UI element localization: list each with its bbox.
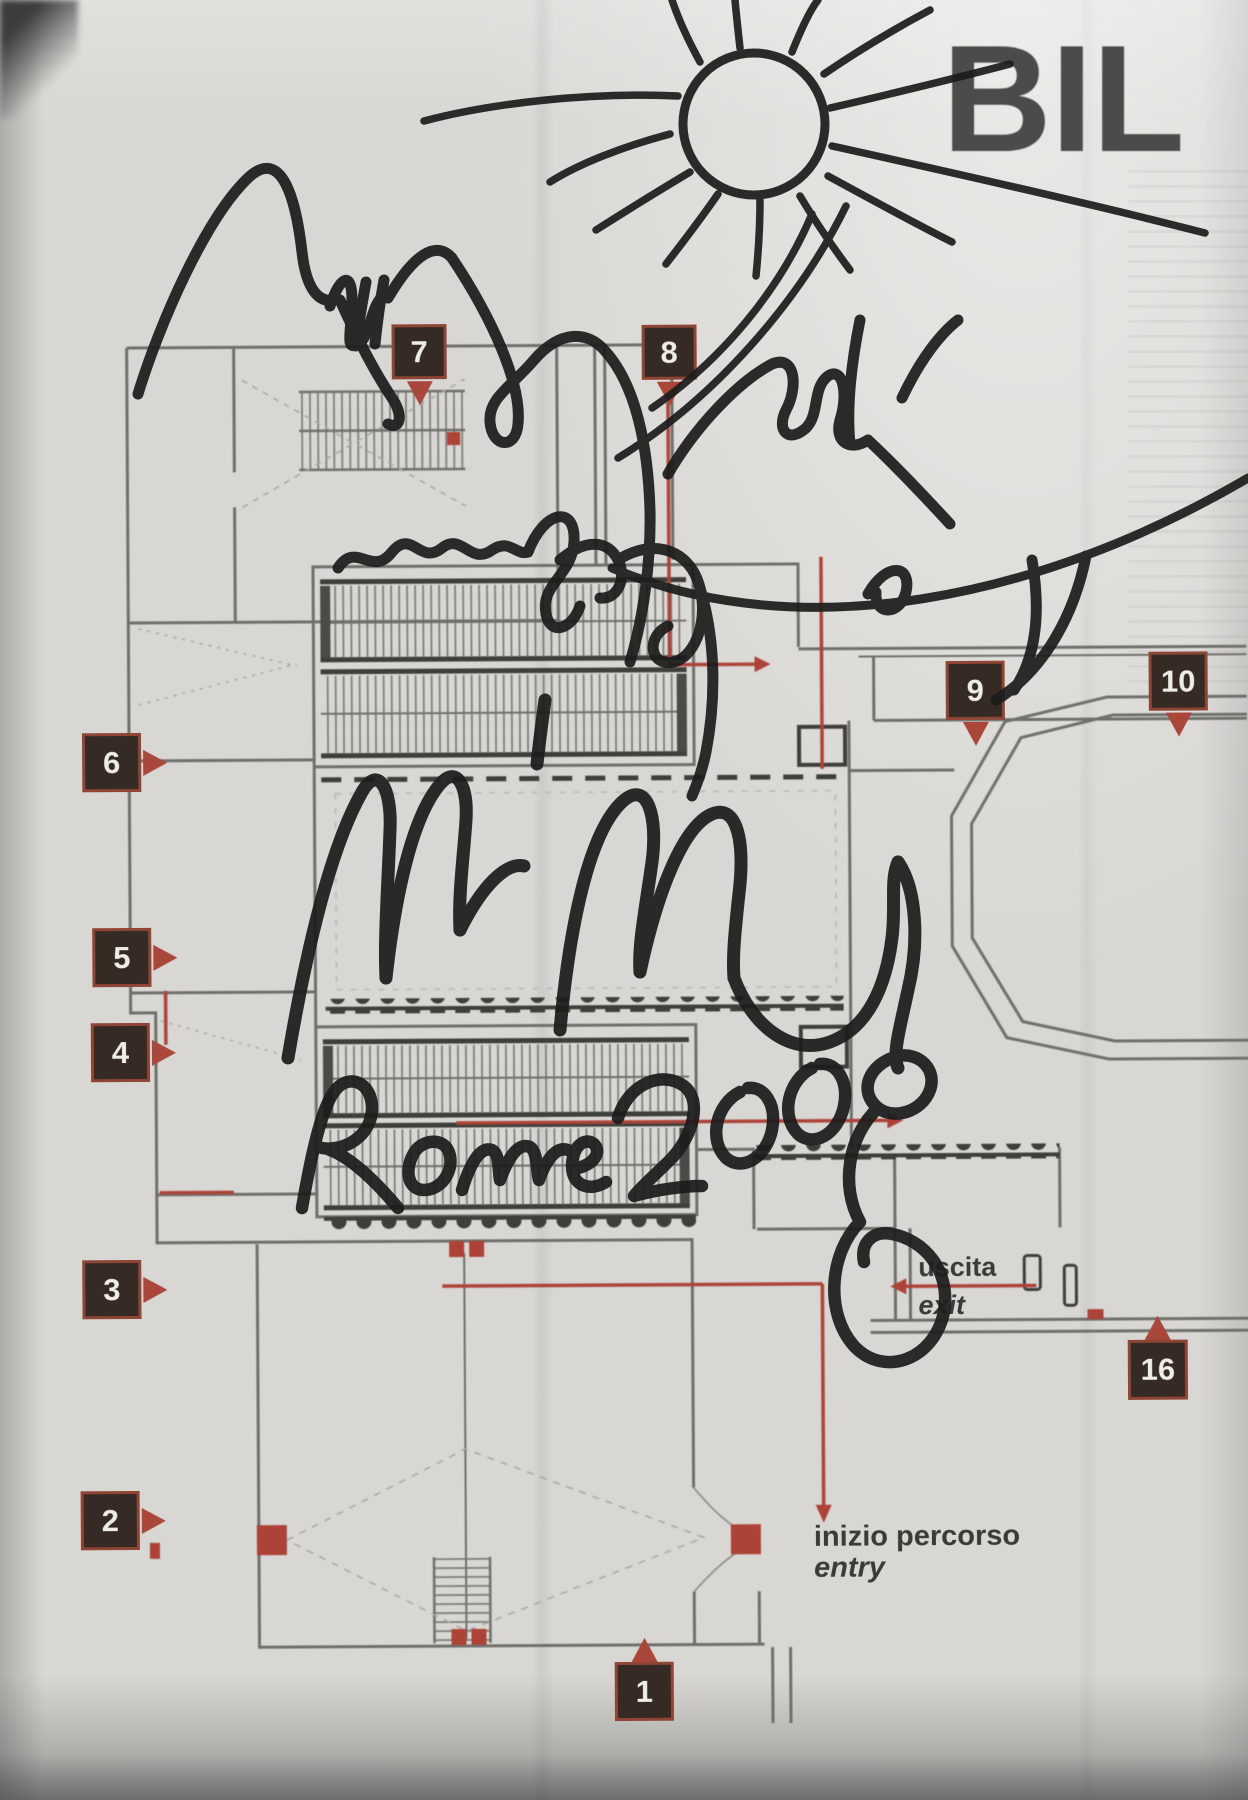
signature-scribble-middle: [338, 517, 713, 796]
autograph-ink-overlay: [0, 0, 1248, 1800]
signature-main: [288, 700, 915, 1068]
handwriting-rome-2008: [302, 1055, 945, 1362]
signature-scribble-top-left: [138, 168, 650, 662]
signature-scribble-right: [668, 320, 1086, 700]
photographed-page: 1 2 3 4 5 6 7 8 9 10: [0, 0, 1248, 1800]
